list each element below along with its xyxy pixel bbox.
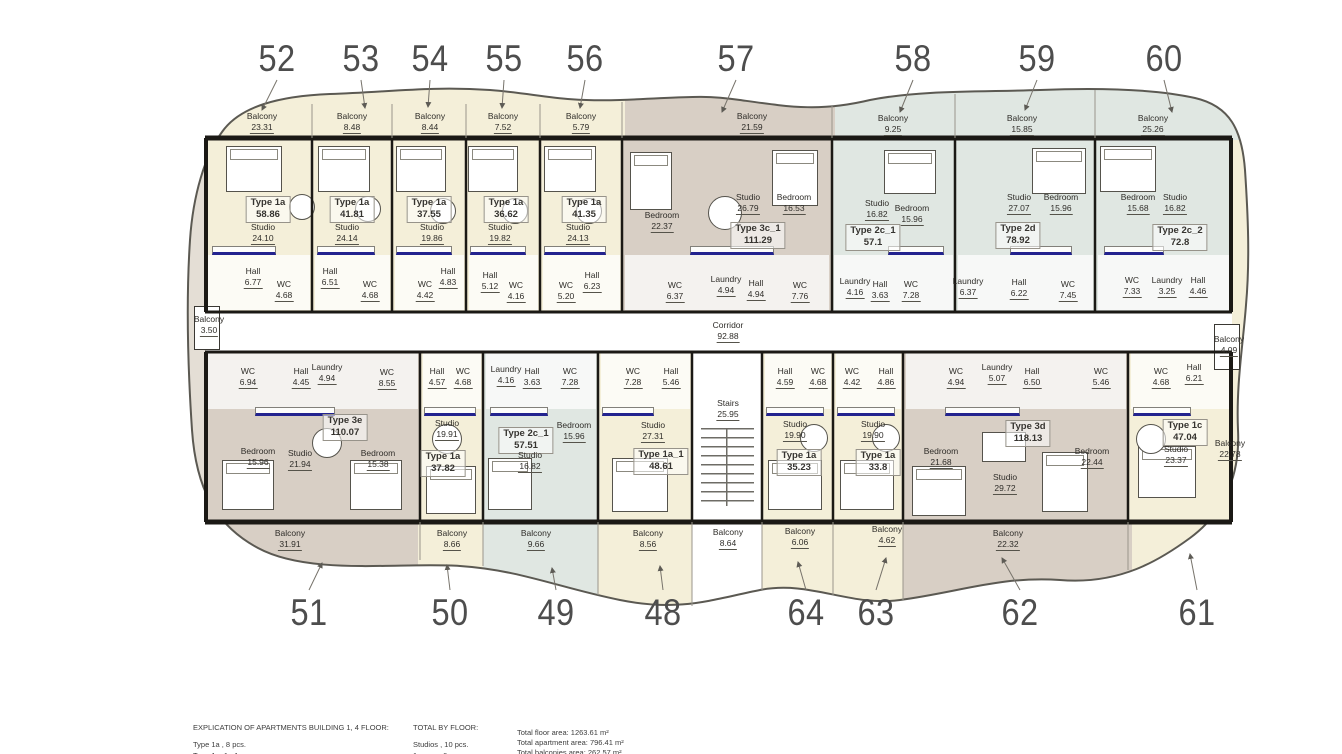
total-balconies-area: Total balconies area: 262.57 m² <box>517 748 622 754</box>
room-label: Studio27.07 <box>1007 192 1031 215</box>
room-label: Bedroom15.68 <box>1121 192 1156 215</box>
room-label: WC4.68 <box>275 279 294 302</box>
room-label: WC5.46 <box>1092 366 1111 389</box>
balcony-label: Balcony8.66 <box>437 528 467 551</box>
room-label: Hall4.94 <box>747 278 766 301</box>
total-floor-area: Total floor area: 1263.61 m² <box>517 728 609 737</box>
balcony-label: Balcony8.56 <box>633 528 663 551</box>
room-label: WC4.68 <box>361 279 380 302</box>
type-label: Type 1a36.62 <box>484 196 529 223</box>
corridor-label: Corridor92.88 <box>713 320 744 343</box>
stairs-label: Stairs25.95 <box>716 398 739 421</box>
unit-number-56: 56 <box>566 38 603 80</box>
balcony-label: Balcony25.26 <box>1138 113 1168 136</box>
unit-number-61: 61 <box>1178 592 1215 634</box>
room-label: WC4.42 <box>843 366 862 389</box>
balcony-label: Balcony22.32 <box>993 528 1023 551</box>
type-label: Type 1a35.23 <box>777 449 822 476</box>
balcony-label: Balcony9.25 <box>878 113 908 136</box>
room-label: Hall3.63 <box>871 279 890 302</box>
unit-number-57: 57 <box>717 38 754 80</box>
balcony-label: Balcony8.64 <box>713 527 743 550</box>
labels-layer: Corridor92.88 Stairs25.95 Balcony3.50 Ba… <box>0 0 1342 754</box>
balcony-label: Balcony9.66 <box>521 528 551 551</box>
type-label: Type 2d78.92 <box>995 222 1040 249</box>
unit-number-48: 48 <box>644 592 681 634</box>
type-label: Type 1a37.55 <box>407 196 452 223</box>
balcony-label: Balcony8.44 <box>415 111 445 134</box>
balcony-label: Balcony7.52 <box>488 111 518 134</box>
unit-number-62: 62 <box>1001 592 1038 634</box>
balcony-label: Balcony6.06 <box>785 526 815 549</box>
room-label: WC7.28 <box>902 279 921 302</box>
room-label: WC6.37 <box>666 280 685 303</box>
room-label: Bedroom22.37 <box>645 210 680 233</box>
room-label: WC7.28 <box>624 366 643 389</box>
balcony-label: Balcony4.62 <box>872 524 902 547</box>
room-label: Studio19.90 <box>861 419 885 442</box>
balcony-label: Balcony5.79 <box>566 111 596 134</box>
room-label: Studio19.90 <box>783 419 807 442</box>
room-label: WC4.94 <box>947 366 966 389</box>
unit-number-53: 53 <box>342 38 379 80</box>
explication-line: Type 1a , 8 pcs. <box>193 740 246 749</box>
room-label: WC4.68 <box>454 366 473 389</box>
room-label: WC4.42 <box>416 279 435 302</box>
explication-title: EXPLICATION OF APARTMENTS BUILDING 1, 4 … <box>193 723 389 732</box>
room-label: WC4.68 <box>809 366 828 389</box>
room-label: Hall6.50 <box>1023 366 1042 389</box>
room-label: Hall6.51 <box>321 266 340 289</box>
unit-number-55: 55 <box>485 38 522 80</box>
type-label: Type 3e110.07 <box>323 414 368 441</box>
room-label: Hall4.57 <box>428 366 447 389</box>
unit-number-49: 49 <box>537 592 574 634</box>
room-label: Hall4.46 <box>1189 275 1208 298</box>
type-label: Type 2c_272.8 <box>1152 224 1207 251</box>
unit-number-60: 60 <box>1145 38 1182 80</box>
unit-number-59: 59 <box>1018 38 1055 80</box>
type-label: Type 1a41.81 <box>330 196 375 223</box>
room-label: Studio27.31 <box>641 420 665 443</box>
room-label: Studio29.72 <box>993 472 1017 495</box>
room-label: Hall4.59 <box>776 366 795 389</box>
unit-number-50: 50 <box>431 592 468 634</box>
room-label: Laundry6.37 <box>953 276 984 299</box>
unit-number-64: 64 <box>787 592 824 634</box>
type-label: Type 2c_157.1 <box>845 224 900 251</box>
room-label: Hall4.83 <box>439 266 458 289</box>
room-label: Studio24.13 <box>566 222 590 245</box>
room-label: Bedroom21.68 <box>924 446 959 469</box>
type-label: Type 1a37.82 <box>421 450 466 477</box>
type-label: Type 1c47.04 <box>1163 419 1208 446</box>
room-label: Laundry4.16 <box>491 364 522 387</box>
balcony-label: Balcony4.09 <box>1214 334 1244 357</box>
room-label: Studio19.86 <box>420 222 444 245</box>
type-label: Type 1a33.8 <box>856 449 901 476</box>
room-label: WC4.68 <box>1152 366 1171 389</box>
type-label: Type 3c_1111.29 <box>730 222 785 249</box>
room-label: Studio24.10 <box>251 222 275 245</box>
balcony-label: Balcony3.50 <box>194 314 224 337</box>
total-apartment-area: Total apartment area: 796.41 m² <box>517 738 624 747</box>
room-label: Laundry4.94 <box>711 274 742 297</box>
room-label: Hall6.22 <box>1010 277 1029 300</box>
room-label: Bedroom15.96 <box>241 446 276 469</box>
room-label: WC7.33 <box>1123 275 1142 298</box>
floor-plan-page: Corridor92.88 Stairs25.95 Balcony3.50 Ba… <box>0 0 1342 754</box>
room-label: WC6.94 <box>239 366 258 389</box>
room-label: Hall3.63 <box>523 366 542 389</box>
unit-number-52: 52 <box>258 38 295 80</box>
room-label: Studio19.82 <box>488 222 512 245</box>
room-label: Studio16.82 <box>518 450 542 473</box>
room-label: Studio19.91 <box>435 418 459 441</box>
type-label: Type 1a_148.61 <box>633 448 688 475</box>
unit-number-58: 58 <box>894 38 931 80</box>
room-label: Studio23.37 <box>1164 444 1188 467</box>
room-label: WC4.16 <box>507 280 526 303</box>
balcony-label: Balcony8.48 <box>337 111 367 134</box>
balcony-label: Balcony21.59 <box>737 111 767 134</box>
room-label: Laundry4.94 <box>312 362 343 385</box>
room-label: Studio16.82 <box>865 198 889 221</box>
total-by-floor-line: Studios , 10 pcs. <box>413 740 468 749</box>
room-label: Laundry4.16 <box>840 276 871 299</box>
room-label: Studio21.94 <box>288 448 312 471</box>
room-label: WC8.55 <box>378 367 397 390</box>
room-label: Bedroom15.96 <box>1044 192 1079 215</box>
room-label: Hall6.21 <box>1185 362 1204 385</box>
total-by-floor-title: TOTAL BY FLOOR: <box>413 723 478 732</box>
room-label: Studio24.14 <box>335 222 359 245</box>
room-label: Bedroom15.38 <box>361 448 396 471</box>
room-label: Hall5.12 <box>481 270 500 293</box>
balcony-label: Balcony31.91 <box>275 528 305 551</box>
unit-number-63: 63 <box>857 592 894 634</box>
room-label: Laundry5.07 <box>982 362 1013 385</box>
room-label: WC5.20 <box>557 280 576 303</box>
unit-number-54: 54 <box>411 38 448 80</box>
room-label: Bedroom16.53 <box>777 192 812 215</box>
room-label: Bedroom15.96 <box>895 203 930 226</box>
room-label: Bedroom15.96 <box>557 420 592 443</box>
room-label: Studio26.79 <box>736 192 760 215</box>
room-label: Hall5.46 <box>662 366 681 389</box>
room-label: Laundry3.25 <box>1152 275 1183 298</box>
room-label: Bedroom22.44 <box>1075 446 1110 469</box>
room-label: Hall4.45 <box>292 366 311 389</box>
room-label: Hall6.23 <box>583 270 602 293</box>
type-label: Type 1a58.86 <box>246 196 291 223</box>
type-label: Type 1a41.35 <box>562 196 607 223</box>
unit-number-51: 51 <box>290 592 327 634</box>
room-label: Hall6.77 <box>244 266 263 289</box>
room-label: Hall4.86 <box>877 366 896 389</box>
type-label: Type 3d118.13 <box>1005 420 1050 447</box>
balcony-label: Balcony15.85 <box>1007 113 1037 136</box>
room-label: Studio16.82 <box>1163 192 1187 215</box>
room-label: WC7.45 <box>1059 279 1078 302</box>
room-label: WC7.28 <box>561 366 580 389</box>
room-label: WC7.76 <box>791 280 810 303</box>
balcony-label: Balcony23.31 <box>247 111 277 134</box>
balcony-label: Balcony22.78 <box>1215 438 1245 461</box>
